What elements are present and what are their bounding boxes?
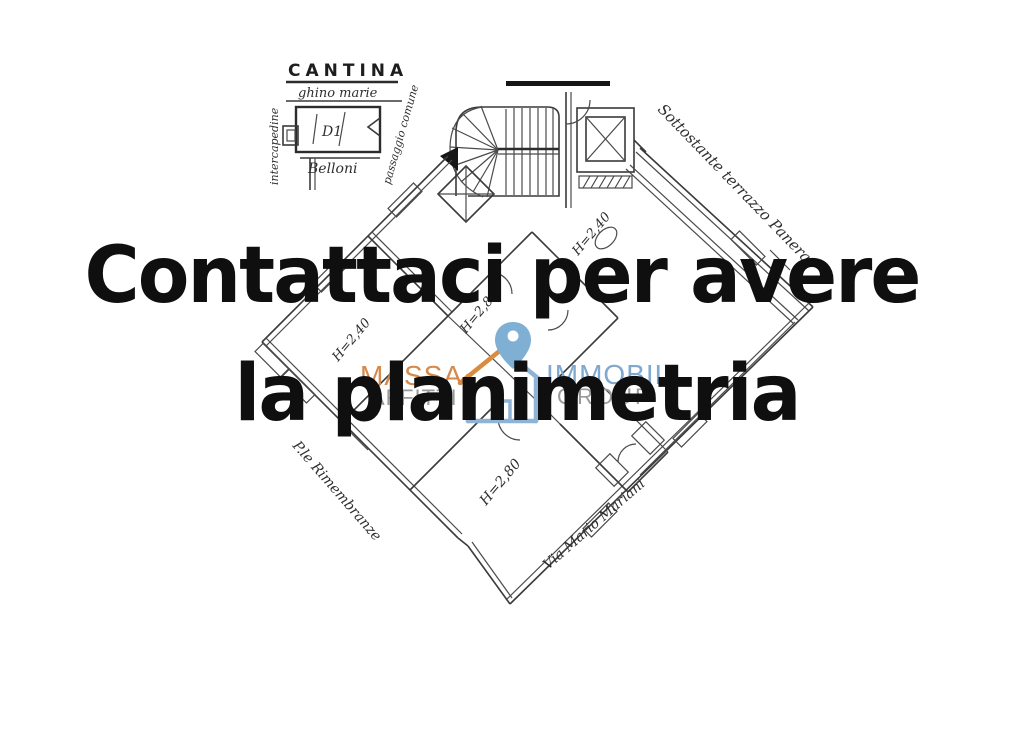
brand-affitti: AFFITTI	[370, 387, 458, 409]
cantina-left-label: intercapedine	[268, 107, 281, 185]
elevator-shaft	[577, 108, 634, 188]
height-label-2: H=2,40	[569, 210, 614, 260]
label-piazzale: P.le Rimembranze	[288, 437, 384, 544]
cantina-subtitle: ghino marie	[298, 86, 378, 101]
cantina-right-label: passaggio comune	[380, 83, 421, 186]
cantina-inset: CANTINA ghino marie D1 Belloni intercape…	[268, 61, 421, 190]
height-label-4: H=2,80	[476, 456, 524, 509]
cantina-room-code: D1	[321, 124, 342, 140]
listing-image: CANTINA ghino marie D1 Belloni intercape…	[0, 0, 1024, 746]
cantina-below-label: Belloni	[307, 161, 357, 177]
watermark-logo: MASSA AFFITTI IMMOBIL GROUP	[360, 323, 660, 418]
cantina-title: CANTINA	[288, 61, 408, 81]
label-via: Via Mario Mariani	[540, 476, 648, 573]
staircase	[438, 106, 559, 222]
brand-group: GROUP	[557, 386, 653, 408]
location-pin-icon	[493, 321, 533, 371]
